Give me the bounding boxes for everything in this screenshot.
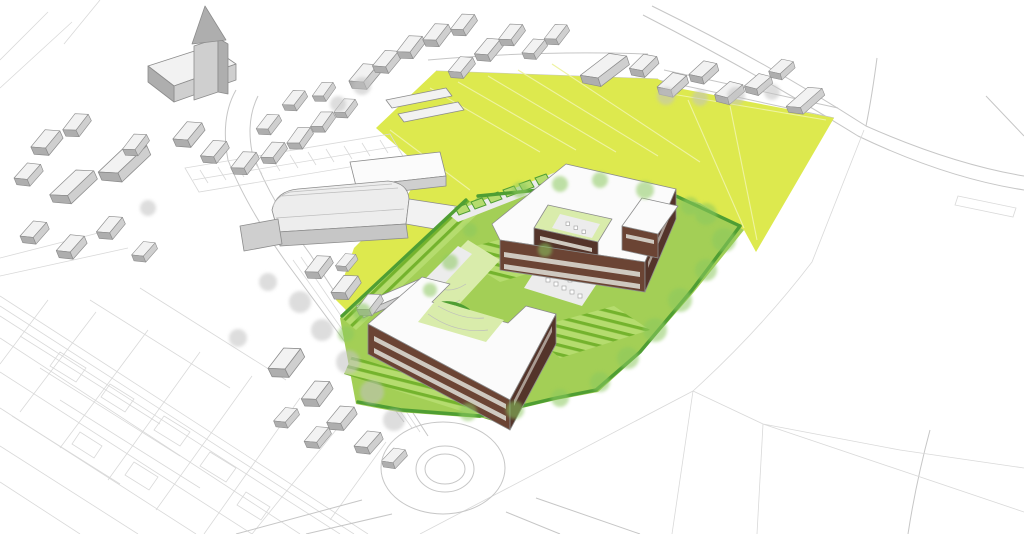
- church-tower: [194, 38, 218, 100]
- site-aerial-rendering: [0, 0, 1024, 534]
- rendering-stage: [0, 0, 1024, 534]
